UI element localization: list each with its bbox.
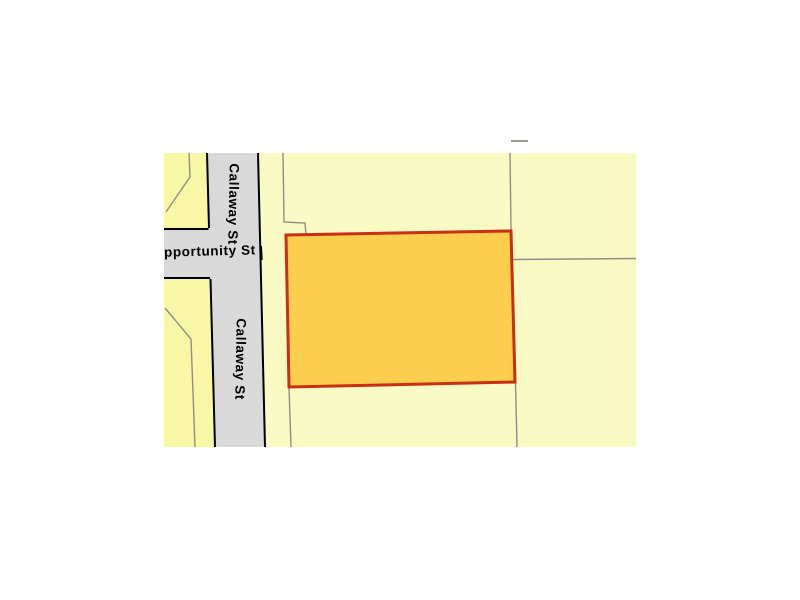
map-canvas: Callaway St Callaway St Opportunity St: [164, 153, 636, 447]
street-label-callaway-upper: Callaway St: [225, 163, 241, 245]
parcel-line-northeast: [510, 153, 511, 231]
parcel-map: Callaway St Callaway St Opportunity St: [164, 153, 636, 447]
street-label-opportunity: Opportunity St: [164, 242, 256, 260]
highlighted-parcel[interactable]: [286, 231, 515, 387]
stray-boundary-stub: [511, 140, 528, 142]
parcel-line-east-horizontal: [513, 259, 636, 260]
junction-edge-tick: [261, 246, 262, 260]
street-label-callaway-lower: Callaway St: [232, 318, 248, 400]
